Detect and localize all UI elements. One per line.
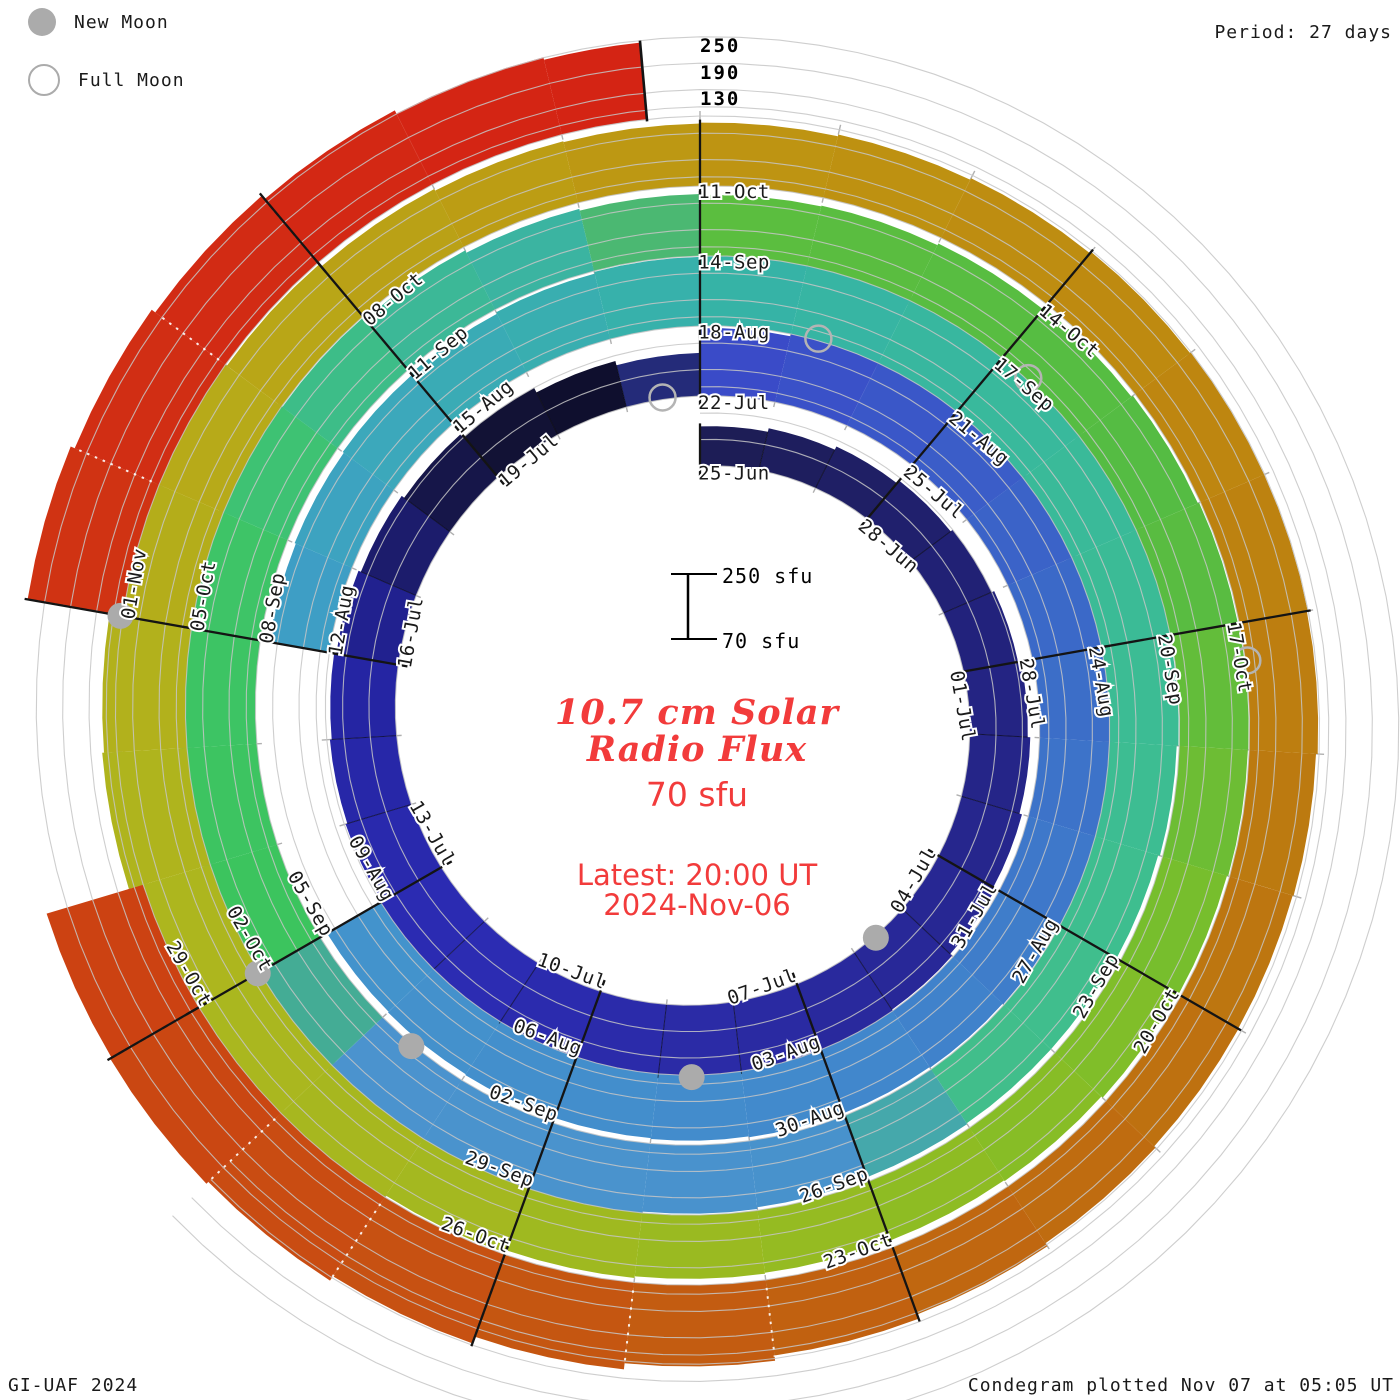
latest-date: 2024-Nov-06: [577, 890, 817, 920]
condegram-page: 25-Jun28-Jun01-Jul04-Jul07-Jul10-Jul13-J…: [0, 0, 1400, 1400]
date-label: 11-Oct: [698, 181, 770, 203]
chart-title-line1: 10.7 cm Solar: [555, 694, 839, 731]
day-segment: [642, 1141, 757, 1214]
credit-right: Condegram plotted Nov 07 at 05:05 UT: [968, 1375, 1394, 1396]
latest-time: Latest: 20:00 UT: [577, 860, 817, 890]
legend-label: New Moon: [74, 12, 169, 33]
full-moon-icon: [28, 64, 60, 96]
radial-axis-tick-130: 130: [700, 88, 770, 110]
scale-top-label: 250 sfu: [722, 564, 813, 588]
latest-observation: Latest: 20:00 UT 2024-Nov-06: [577, 860, 817, 920]
chart-title-line2: Radio Flux: [555, 731, 839, 768]
legend-item-full-moon: Full Moon: [28, 64, 185, 96]
day-segment: [616, 353, 700, 407]
period-label: Period: 27 days: [1214, 22, 1392, 43]
legend-label: Full Moon: [78, 70, 185, 91]
day-segment: [179, 627, 260, 748]
radial-axis-tick-250: 250: [700, 35, 770, 57]
new-moon-marker: [398, 1033, 424, 1059]
new-moon-marker: [863, 925, 889, 951]
date-label: 14-Sep: [698, 251, 770, 273]
legend-item-new-moon: New Moon: [28, 8, 169, 36]
date-label: 18-Aug: [698, 322, 770, 344]
day-segment: [564, 124, 701, 203]
date-label: 22-Jul: [698, 392, 770, 414]
date-label: 25-Jun: [698, 462, 770, 484]
chart-title: 10.7 cm Solar Radio Flux: [555, 694, 839, 768]
scale-bottom-label: 70 sfu: [722, 629, 800, 653]
current-flux-value: 70 sfu: [646, 775, 748, 814]
day-segment: [330, 654, 398, 740]
radial-axis-tick-190: 190: [700, 62, 770, 84]
new-moon-marker: [679, 1064, 705, 1090]
credit-left: GI-UAF 2024: [8, 1375, 138, 1396]
new-moon-icon: [28, 8, 56, 36]
